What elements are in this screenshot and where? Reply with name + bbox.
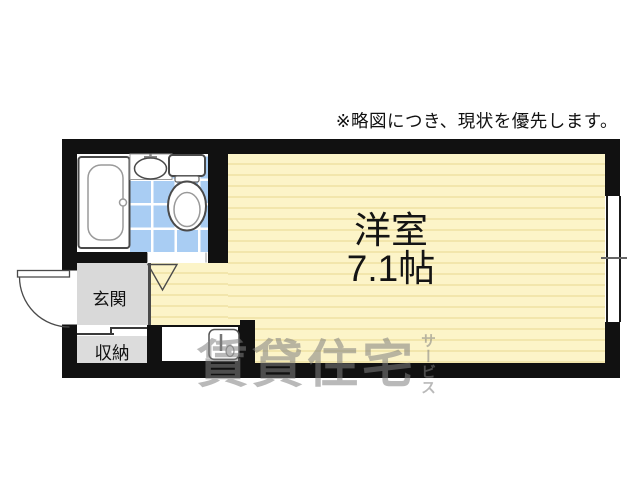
wall-north: [62, 139, 620, 154]
watermark-text-vertical: サービス: [417, 333, 438, 397]
disclaimer-note: ※略図につき、現状を優先します。: [336, 108, 618, 133]
corridor-floor: [150, 263, 228, 325]
entrance-step-line: [148, 263, 151, 325]
watermark-text: 賃貸住宅: [197, 338, 417, 392]
floorplan-canvas: ※略図につき、現状を優先します。: [0, 0, 640, 480]
main-room-area: 7.1帖: [285, 250, 497, 288]
wall-east-lower: [605, 322, 620, 378]
window-icon: [606, 196, 621, 322]
main-room-label: 洋室 7.1帖: [285, 212, 497, 287]
bathroom-tile-floor: [130, 154, 208, 252]
wall-stub-kitchen: [147, 325, 160, 363]
bathtub-zone: [77, 154, 130, 252]
wall-west-upper: [62, 139, 77, 270]
storage-label: 収納: [77, 340, 147, 365]
wall-east-upper: [605, 139, 620, 196]
window-divider-line: [601, 257, 627, 259]
sliding-closet-door-icon: [77, 333, 114, 335]
wall-west-lower: [62, 325, 77, 378]
sliding-closet-door-icon: [110, 327, 112, 335]
sliding-closet-door-icon: [110, 327, 150, 329]
entrance-label: 玄関: [74, 285, 145, 310]
main-room-name: 洋室: [285, 212, 497, 250]
bathroom-wall-south: [62, 252, 147, 263]
bathroom-wall-east: [208, 154, 228, 263]
